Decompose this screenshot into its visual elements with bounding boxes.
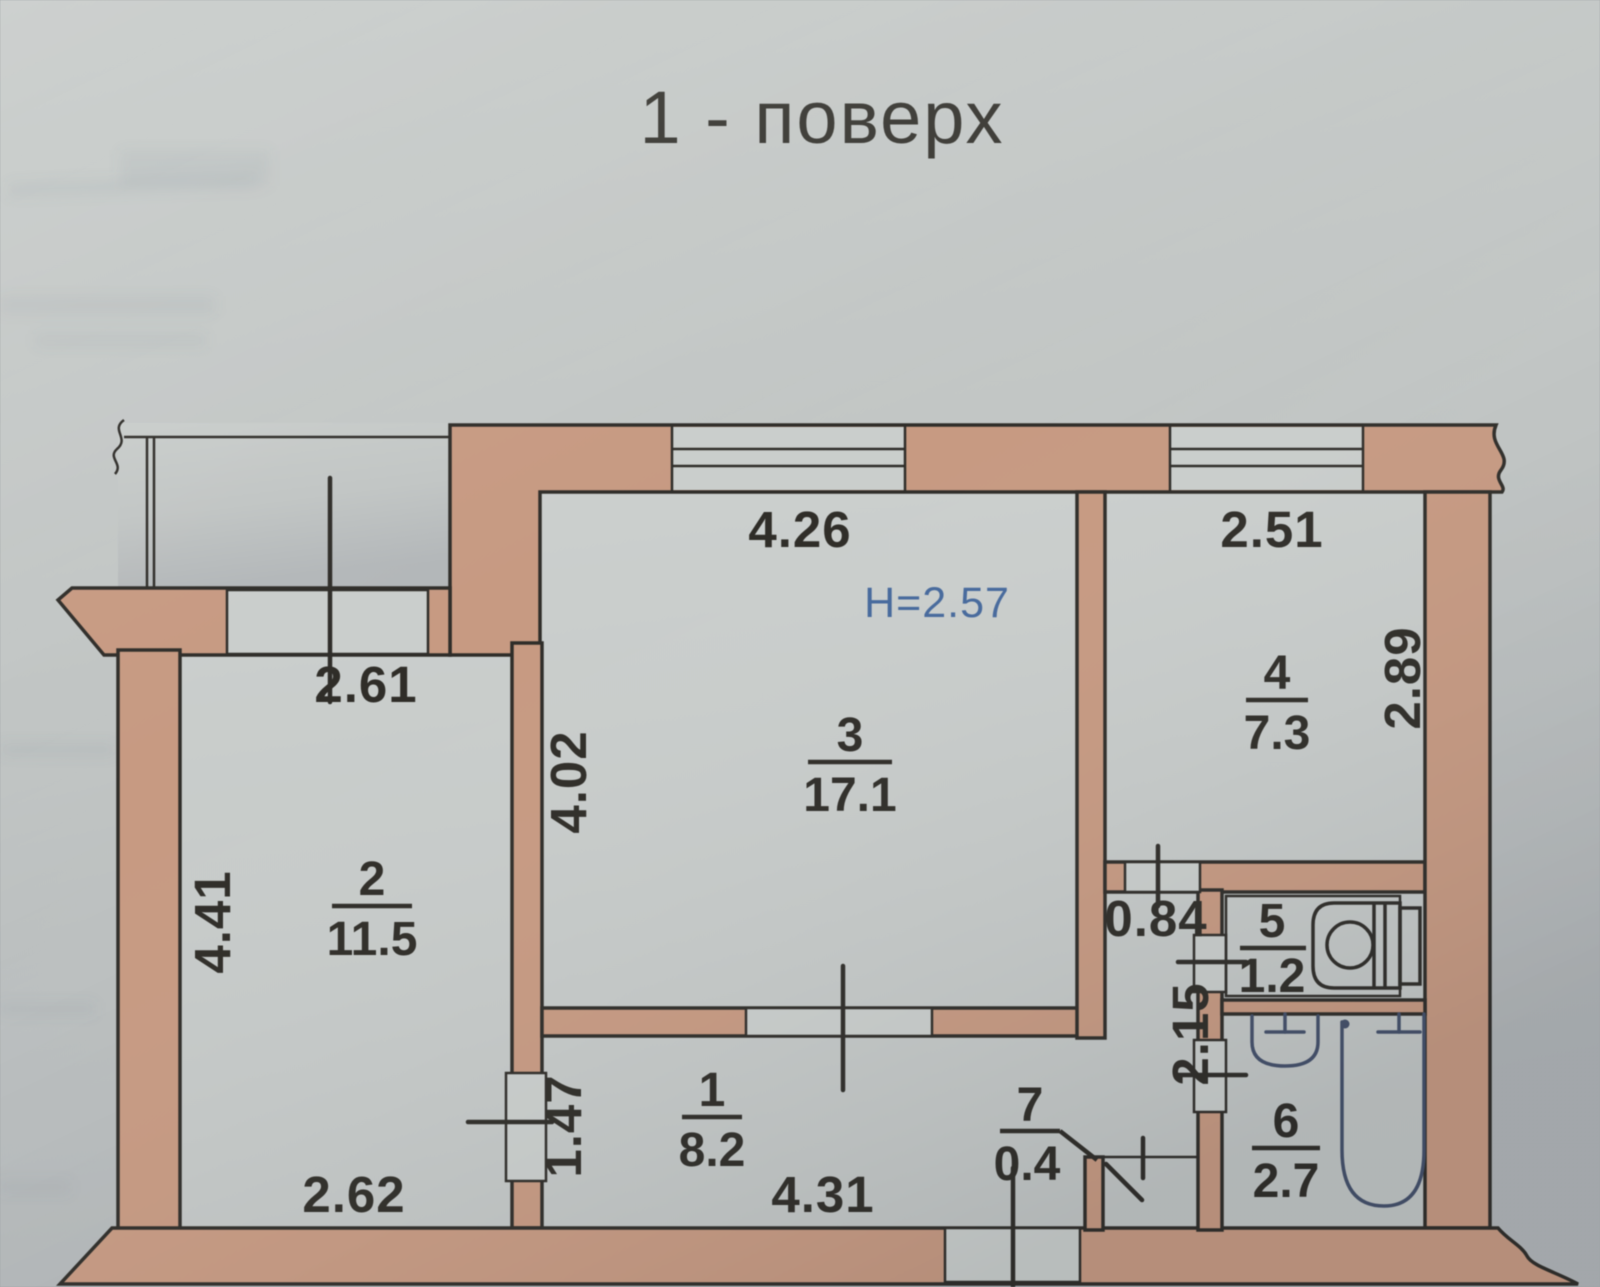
dim-room2-door-width: 1.47 [535, 1074, 592, 1177]
wall-room3-right [1077, 492, 1105, 1038]
room-1-area: 8.2 [679, 1124, 746, 1177]
window-room4 [1170, 425, 1363, 492]
wall-bath-partition [1198, 1110, 1222, 1230]
page-title: 1 - поверх [639, 76, 1004, 159]
room-4-number: 4 [1264, 647, 1291, 700]
dim-room3-depth: 4.02 [540, 730, 597, 833]
dim-room4-depth: 2.89 [1374, 626, 1431, 729]
room-2-area: 11.5 [327, 913, 418, 966]
wall-bottom [60, 1228, 1578, 1284]
door-kitchen [1125, 862, 1200, 892]
dim-corridor-width: 4.31 [771, 1166, 874, 1223]
room-5-area: 1.2 [1239, 950, 1306, 1003]
room-3-area: 17.1 [803, 769, 896, 822]
opening-balcony [227, 590, 428, 654]
room-6-number: 6 [1273, 1095, 1300, 1148]
room-7-number: 7 [1017, 1079, 1044, 1132]
door-room3 [746, 1008, 932, 1036]
room-7-area: 0.4 [994, 1138, 1061, 1191]
room-2-number: 2 [359, 853, 386, 906]
dim-room2-top-opening: 2.61 [314, 656, 417, 713]
dim-room2-width: 2.62 [302, 1166, 405, 1223]
scanned-floor-plan-page: 1 - поверх [0, 0, 1600, 1287]
room-3-number: 3 [837, 709, 864, 762]
dim-room3-window-width: 4.26 [748, 501, 851, 558]
wall-left [118, 650, 180, 1230]
room-6-area: 2.7 [1253, 1155, 1320, 1208]
exterior-notch [118, 423, 450, 589]
room-4-area: 7.3 [1244, 707, 1311, 760]
dim-bath-depth: 2.15 [1162, 982, 1219, 1085]
room-1-number: 1 [699, 1064, 726, 1117]
wall-right [1425, 492, 1490, 1228]
dim-hall-width: 0.84 [1104, 890, 1207, 947]
room-5-number: 5 [1259, 895, 1286, 948]
floor-plan-drawing: 1 - поверх [0, 0, 1600, 1287]
wall-closet-left [1085, 1157, 1103, 1230]
dim-room2-depth: 4.41 [184, 870, 241, 973]
dim-room4-window-width: 2.51 [1220, 501, 1323, 558]
ceiling-height-label: H=2.57 [864, 579, 1010, 627]
window-room3 [672, 425, 905, 492]
